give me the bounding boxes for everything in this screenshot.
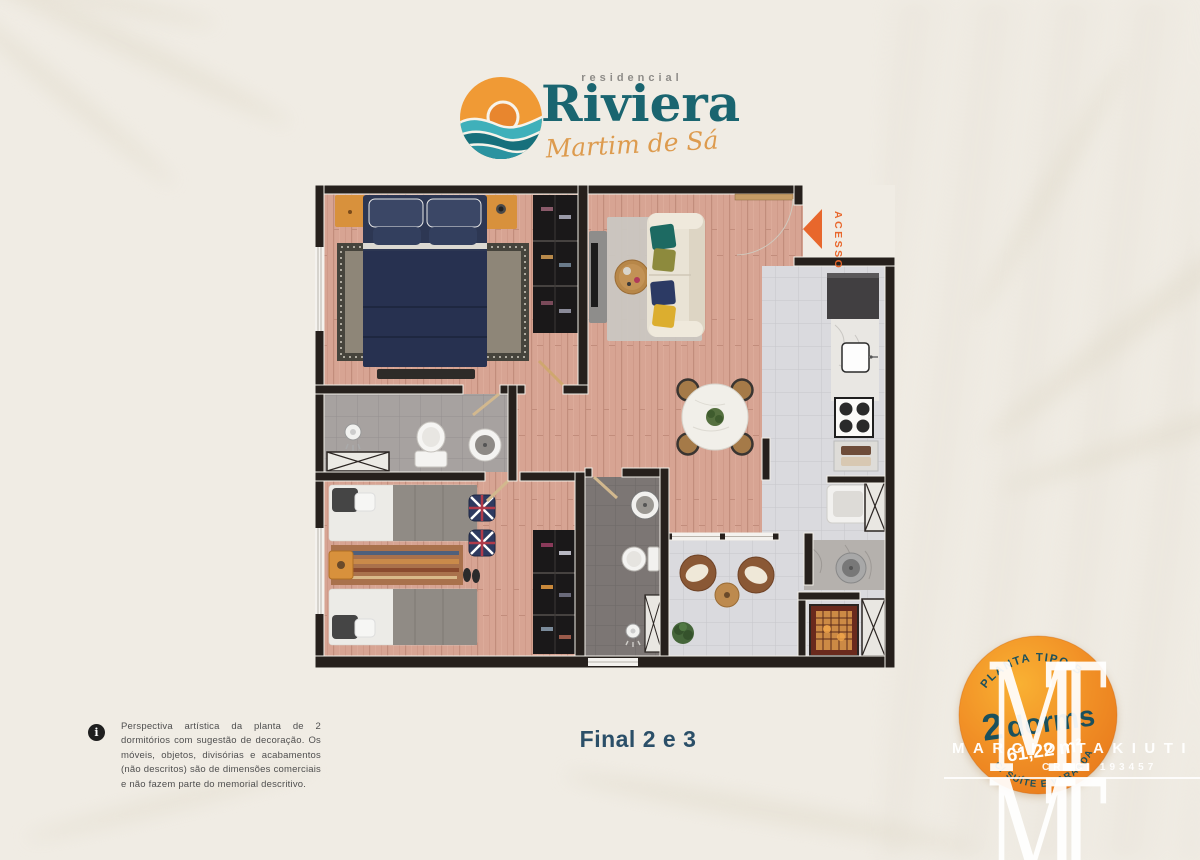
slipper [463, 568, 471, 582]
shower-head-icon [345, 424, 361, 451]
sun-waves-logo-icon [458, 75, 544, 161]
round-basin [631, 491, 659, 519]
shaft-duct [865, 481, 885, 531]
tv [591, 243, 598, 307]
suite-double-bed [363, 195, 487, 367]
fridge [827, 273, 879, 319]
monogram-t: T [1045, 761, 1107, 860]
disclaimer-text: Perspectiva artística da planta de 2 dor… [121, 720, 321, 792]
cooktop [835, 398, 873, 437]
barbecue-grill [810, 605, 858, 656]
leaf-shadow [967, 55, 1133, 324]
leaf-shadow [996, 362, 1200, 500]
coffee-table [615, 260, 649, 294]
shower-box [327, 452, 389, 471]
info-icon: i [88, 724, 105, 741]
bedroom2-wardrobe [533, 530, 577, 654]
bed-bench [377, 369, 475, 379]
dining-set [678, 380, 753, 455]
access-label: ACESSO [832, 211, 844, 270]
suite-wardrobe [533, 195, 578, 333]
round-basin [469, 429, 501, 461]
union-jack-pouf [469, 530, 495, 556]
towel-shelf [834, 441, 878, 471]
floor-plan: ACESSO [315, 185, 895, 673]
watermark-line [944, 777, 1200, 779]
shaft-duct [645, 595, 662, 652]
watermark-monogram: M T [985, 761, 1155, 860]
shaft-duct [862, 599, 885, 656]
watermark-creci: CRECI 193457 [1042, 762, 1157, 773]
brand-logo: residencial Riviera Martim de Sá [455, 70, 735, 175]
disclaimer: i Perspectiva artística da planta de 2 d… [88, 720, 324, 792]
leaf-shadow [977, 173, 1200, 452]
entry-door [735, 194, 793, 200]
toilet [622, 547, 659, 571]
twin-bed-1 [329, 485, 477, 541]
sofa [647, 213, 705, 337]
toilet [415, 422, 447, 467]
twin-bed-2 [329, 589, 477, 645]
plant [672, 622, 694, 644]
service-counter [804, 540, 885, 590]
slipper [472, 569, 480, 583]
flyer-page: residencial Riviera Martim de Sá [0, 0, 1200, 860]
unit-label: Final 2 e 3 [558, 726, 718, 753]
logo-name: Riviera [541, 78, 723, 129]
leaf-shadow [561, 764, 978, 859]
watermark-name: MARCIO TAKIUTI [952, 740, 1194, 757]
laundry-sink [827, 485, 869, 523]
